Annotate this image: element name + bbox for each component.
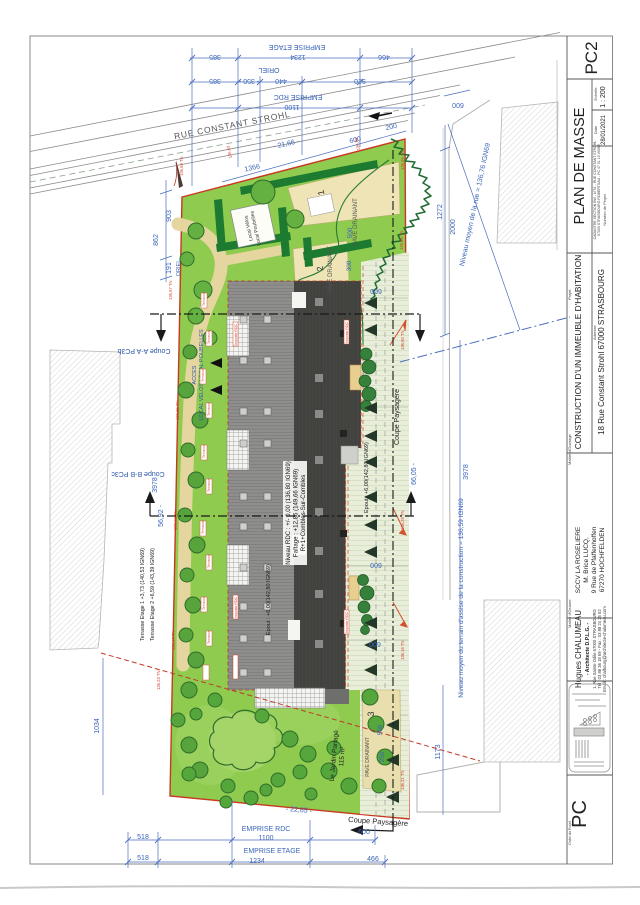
svg-text:Terrasse: Terrasse [202,444,206,458]
svg-text:Ordre du Projet: Ordre du Projet [568,821,572,845]
svg-text:67270 HOCHFELDEN: 67270 HOCHFELDEN [599,527,606,592]
svg-text:Terrasse: Terrasse [207,330,211,344]
svg-text:Terrasse: Terrasse [201,520,205,534]
svg-text:1173: 1173 [435,744,442,759]
svg-text:Coupe Paysagère: Coupe Paysagère [394,389,401,445]
svg-text:Maître d'Oeuvre: Maître d'Oeuvre [567,599,572,628]
svg-text:136,25 TN: 136,25 TN [400,511,405,530]
svg-text:2000: 2000 [450,219,457,235]
svg-text:PC2: PC2 [582,41,601,74]
svg-text:136,19 TN: 136,19 TN [173,511,178,530]
svg-text:136,36 TN: 136,36 TN [399,231,404,250]
svg-text:Terrasse: Terrasse [202,292,206,306]
svg-text:SCCV LA ROSELIERE: SCCV LA ROSELIERE [575,526,582,593]
svg-text:136,60 TN: 136,60 TN [400,331,405,350]
svg-text:CONSTRUCTION D'UN IMMEUBLE D'H: CONSTRUCTION D'UN IMMEUBLE D'HABITATION [573,255,583,450]
svg-text:- 350 -: - 350 - [238,77,259,84]
svg-text:Terrasse: Terrasse [207,402,211,416]
svg-text:PAVE DRAINANT: PAVE DRAINANT [328,246,334,294]
svg-text:Hugues CHALUMEAU: Hugues CHALUMEAU [574,610,583,688]
svg-text:385: 385 [209,77,221,84]
svg-text:440: 440 [275,77,287,84]
svg-text:Coupe A-A PC3b: Coupe A-A PC3b [117,347,170,354]
svg-text:136,47 TN: 136,47 TN [171,631,176,650]
svg-text:385: 385 [209,53,221,60]
svg-text:136,16 TN: 136,16 TN [400,641,405,660]
svg-text:Projet: Projet [567,289,572,300]
svg-text:3: 3 [366,711,376,716]
svg-text:Faîtage : +12,86 (149,66 IGN69: Faîtage : +12,86 (149,66 IGN69) [293,469,300,557]
svg-text:Niveau RDC : +/- 0,00 (136,80: Niveau RDC : +/- 0,00 (136,80 IGN69) [285,461,292,564]
svg-text:Epout : +6,00(142,80 IGN69): Epout : +6,00(142,80 IGN69) [364,442,370,513]
svg-text:Imposte RDC: Imposte RDC [345,612,349,633]
svg-text:Niveau moyen du terrain d'assi: Niveau moyen du terrain d'assise de la c… [458,498,465,698]
svg-text:136,23 TN: 136,23 TN [156,671,161,690]
svg-text:R+1+Combles-Sur-Combles: R+1+Combles-Sur-Combles [300,475,307,552]
svg-text:862: 862 [153,234,160,246]
svg-text:Terrasse: Terrasse [202,596,206,610]
svg-text:Terrasse: Terrasse [207,478,211,492]
svg-text:600: 600 [370,287,382,294]
svg-text:Terrasse Etage 2 +6,59 (143,39: Terrasse Etage 2 +6,59 (143,39 IGN69) [150,548,156,641]
svg-text:Email : chalbourg@architecte-c: Email : chalbourg@architecte-chalumeau.c… [602,606,607,692]
svg-text:300: 300 [346,260,353,271]
svg-text:250: 250 [379,751,386,762]
svg-text:ORIEL: ORIEL [176,260,182,277]
svg-text:136,69 TN: 136,69 TN [179,157,184,176]
svg-text:9 Rue de Pfaffenhoffen: 9 Rue de Pfaffenhoffen [591,526,598,593]
svg-text:ORIEL: ORIEL [258,66,279,73]
svg-text:1100: 1100 [284,103,299,110]
svg-text:1100: 1100 [258,835,273,842]
svg-text:18 Rue Constant Strohl 67000 S: 18 Rue Constant Strohl 67000 STRASBOURG [597,269,606,435]
svg-text:518: 518 [137,834,149,841]
svg-text:1234: 1234 [249,858,265,865]
svg-text:600: 600 [369,640,381,647]
svg-text:PAVE DRAINANT: PAVE DRAINANT [365,737,371,777]
svg-text:500: 500 [377,724,384,735]
svg-text:466: 466 [367,856,379,863]
svg-text:3978: 3978 [152,477,159,493]
svg-text:1034: 1034 [94,718,101,734]
svg-text:500: 500 [347,227,354,238]
svg-text:28/01/2021: 28/01/2021 [601,114,607,145]
svg-text:66,05 -: 66,05 - [411,462,418,484]
svg-text:M. Brice LUCQ,: M. Brice LUCQ, [583,537,590,583]
svg-text:EMPRISE ETAGE: EMPRISE ETAGE [244,848,301,855]
svg-text:1272: 1272 [437,204,444,220]
svg-text:Terrasse: Terrasse [207,630,211,644]
svg-text:136,21 TN: 136,21 TN [400,771,405,790]
svg-text:136,57 TN: 136,57 TN [168,281,173,300]
svg-text:56,92 -: 56,92 - [158,504,165,526]
svg-text:67000 STRASBOURG ROBERTSAU - P: 67000 STRASBOURG ROBERTSAU - PC 47 51 10… [597,144,601,236]
svg-text:1234: 1234 [290,53,306,60]
svg-text:3978: 3978 [463,464,470,480]
svg-text:903: 903 [166,210,173,222]
svg-text:- Architecte D.P.L.G. -: - Architecte D.P.L.G. - [585,623,591,676]
svg-text:Maître d'Ouvrage: Maître d'Ouvrage [567,433,572,465]
svg-text:Coupe B-B PC3c: Coupe B-B PC3c [111,470,165,477]
svg-text:466: 466 [378,53,390,60]
svg-text:600: 600 [358,829,370,836]
svg-text:PLAN DE MASSE: PLAN DE MASSE [572,107,588,224]
svg-text:Epout : +6,00(142,80 IGN69): Epout : +6,00(142,80 IGN69) [266,564,272,635]
svg-text:191: 191 [166,262,173,274]
svg-text:Terrasse Etage 1 +3,73 (140,53: Terrasse Etage 1 +3,73 (140,53 IGN69) [140,548,146,641]
svg-text:Imposte RDC: Imposte RDC [234,597,238,618]
svg-text:EMPRISE RDC: EMPRISE RDC [242,826,291,833]
svg-text:600: 600 [370,561,382,568]
svg-text:PC: PC [569,800,591,828]
svg-text:ACCES: ACCES [192,365,198,384]
svg-text:Terrasse: Terrasse [207,554,211,568]
svg-text:136,96 TN: 136,96 TN [400,151,405,170]
svg-text:EMPRISE RDC: EMPRISE RDC [274,93,323,100]
svg-text:Imposte RDC: Imposte RDC [345,322,349,343]
svg-text:518: 518 [137,855,149,862]
svg-text:1 : 200: 1 : 200 [600,86,607,108]
svg-text:EMPRISE ETAGE: EMPRISE ETAGE [268,43,325,50]
svg-text:136,25 TN: 136,25 TN [175,401,180,420]
svg-text:Terrasse: Terrasse [201,368,205,382]
svg-text:Numéro de Projet: Numéro de Projet [602,193,607,225]
svg-text:Echelle: Echelle [593,87,598,101]
svg-text:Imposte RDC: Imposte RDC [234,324,238,345]
svg-text:600: 600 [452,101,464,108]
svg-text:Date: Date [593,125,598,134]
